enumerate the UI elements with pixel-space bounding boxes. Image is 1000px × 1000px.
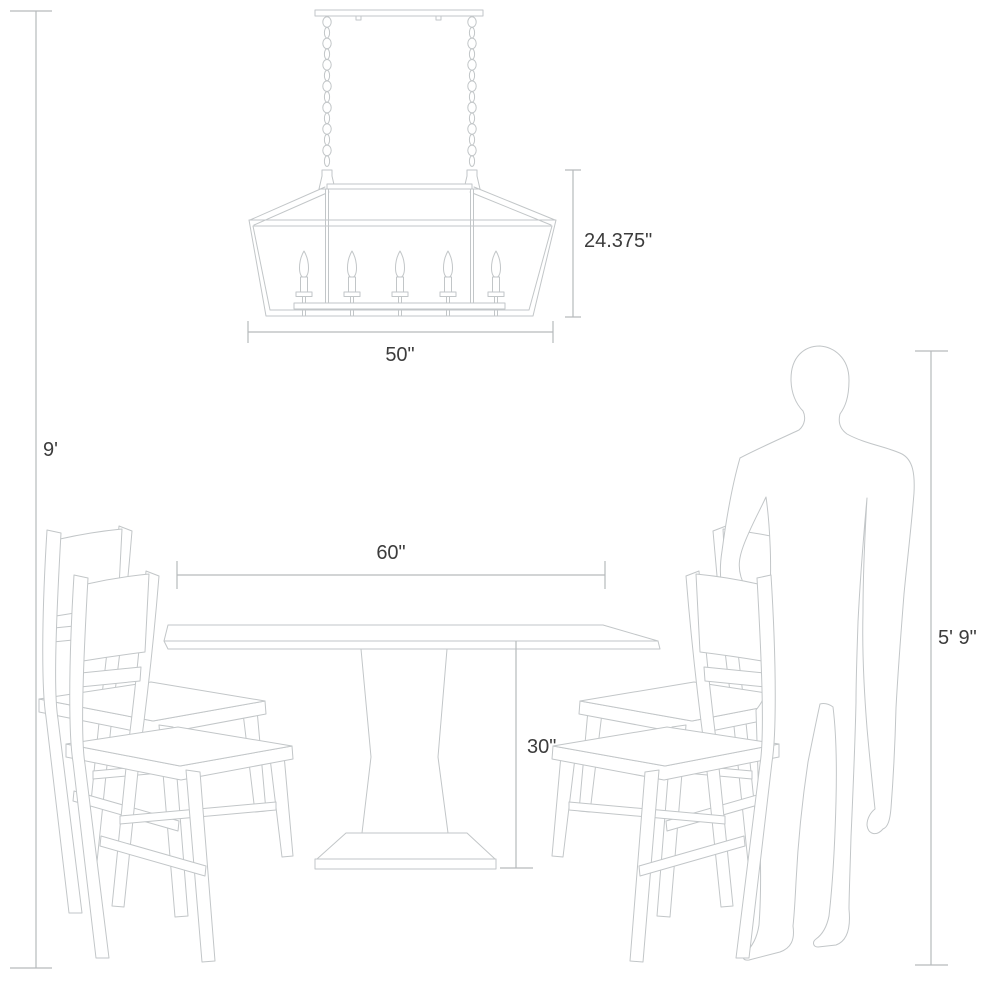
candle-light	[492, 251, 501, 278]
hanging-chains	[323, 17, 476, 167]
cage-roof-struts	[250, 187, 555, 225]
canopy-tab-left	[356, 16, 361, 20]
table-top	[164, 625, 658, 641]
candle-light	[444, 251, 453, 278]
candle-bar	[294, 303, 505, 309]
candle-light	[351, 297, 354, 304]
candle-light	[344, 292, 360, 297]
candle-light	[488, 292, 504, 297]
cage-rod-right	[471, 189, 474, 304]
candle-light	[493, 277, 500, 292]
candle-light	[397, 277, 404, 292]
person-height-dimension	[915, 351, 948, 965]
candle-light	[396, 251, 405, 278]
table-width-label: 60"	[376, 542, 405, 564]
ceiling-height-dimension	[10, 11, 52, 968]
table-base-plinth	[315, 859, 496, 869]
candle-light	[392, 292, 408, 297]
table-width-dimension	[177, 561, 605, 589]
candle-light	[447, 297, 450, 304]
cage-top-bar	[327, 184, 472, 189]
candle-light	[348, 251, 357, 278]
fixture-width-dimension	[248, 321, 553, 343]
canopy-tab-right	[436, 16, 441, 20]
table-base-top	[317, 833, 495, 859]
dimension-diagram: 9' 24.375" 50" 60" 30" 5' 9"	[0, 0, 1000, 1000]
fixture-width-label: 50"	[385, 344, 414, 366]
fixture-height-dimension	[565, 170, 581, 317]
candle-light	[303, 297, 306, 304]
candle-light	[495, 297, 498, 304]
candle-light	[399, 297, 402, 304]
fixture-height-label: 24.375"	[584, 230, 652, 252]
chandelier-drawing	[249, 10, 556, 316]
candle-light	[445, 277, 452, 292]
candle-light	[301, 277, 308, 292]
candle-light	[440, 292, 456, 297]
candle-light	[349, 277, 356, 292]
candle-light	[296, 292, 312, 297]
table-height-label: 30"	[527, 736, 556, 758]
cage-rod-left	[326, 189, 329, 304]
ceiling-canopy-bar	[315, 10, 483, 16]
table-top-edge	[164, 641, 660, 649]
ceiling-height-label: 9'	[43, 439, 58, 461]
candle-light	[300, 251, 309, 278]
table-pedestal	[361, 649, 448, 833]
diagram-drawing: 9' 24.375" 50" 60" 30" 5' 9"	[0, 0, 1000, 1000]
person-height-label: 5' 9"	[938, 627, 977, 649]
